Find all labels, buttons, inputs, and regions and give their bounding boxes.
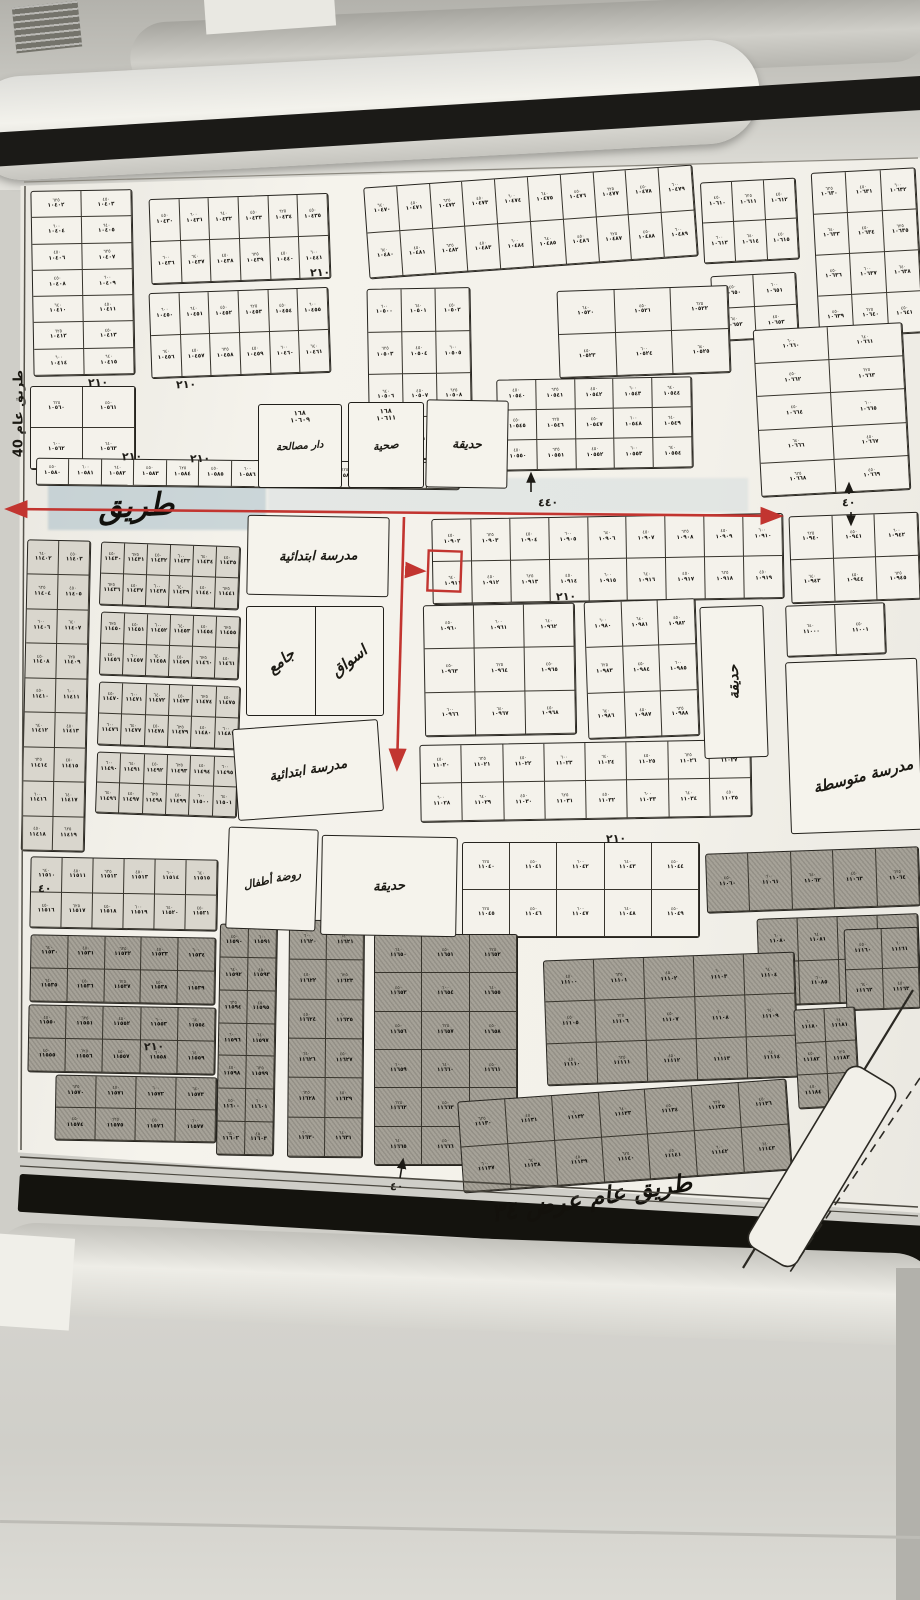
plot-cell: ٦٠٠١٠٩١٠ xyxy=(743,514,783,557)
plot-cell: ٦٤٠١٠٥٤٩ xyxy=(653,407,692,438)
dimension-label: ٤٠ xyxy=(842,496,856,509)
plot-cell: ٤٥٠١١٦٢٤ xyxy=(289,999,326,1039)
plot-cell: ٤٥٠١٠٤٧٣ xyxy=(462,179,498,226)
plot-cell: ٦٢٥١٠٩٠٣ xyxy=(471,519,511,562)
plot-cell: ٤٥٠١٠٦٦٧ xyxy=(833,423,909,460)
plot-cell: ٦٤٠١١٥٠١ xyxy=(213,787,237,818)
plot-cell: ٦٠٠١١٠٤٧ xyxy=(557,890,604,937)
plot-cell: ٦٤٠١٠٥٢٠ xyxy=(558,290,616,335)
plot-cell: ٦٠٠١٠٩٦١ xyxy=(474,605,525,649)
plot-cell: ٦٢٥١١٠٢١ xyxy=(462,744,504,783)
facility-label: دار مصالحة xyxy=(276,439,324,453)
plot-cell: ٤٥٠١٠٩٨٤ xyxy=(623,646,661,693)
plot-cell: ٤٥٠١١٠٣٥ xyxy=(710,778,752,817)
plot-cell: ٦٢٥١١١٨٣ xyxy=(826,1040,858,1074)
plot-cell: ٦٠٠١١٥٣٩ xyxy=(178,971,215,1005)
plot-cell: ٦٠٠١١١٠٨ xyxy=(695,996,746,1039)
plot-cell: ٦٢٥١٠٤٠٧ xyxy=(82,243,132,270)
plot-cell: ٦٢٥١١٥٧٥ xyxy=(95,1108,136,1141)
plot-cell: ٤٥٠١٠٤٣٥ xyxy=(298,194,329,237)
plot-cell: ٦٢٥١١٤٥٥ xyxy=(216,617,240,649)
plot-cell: ٤٥٠١٠٦١٠ xyxy=(701,182,734,224)
plot-cell: ٦٤٠١١٤٣٩ xyxy=(169,576,193,608)
plot-block: ٦٤٠١١٥٣٠٤٥٠١١٥٣١٦٢٥١١٥٣٢٤٥٠١١٥٣٣٦٠٠١١٥٣٤… xyxy=(29,934,216,1005)
plot-cell: ٦٢٥١١٥٥٦ xyxy=(66,1039,104,1073)
plot-cell: ٦٤٠١١٤٩٦ xyxy=(96,783,120,814)
plot-cell: ٤٥٠١١٤٣٢ xyxy=(147,544,171,576)
plot-cell: ٤٥٠١١٥١٨ xyxy=(92,893,124,929)
plot-cell: ٦٤٠١١٤٩١ xyxy=(120,753,144,784)
plot-cell: ٤٥٠١١٥٧٤ xyxy=(55,1108,96,1141)
plot-cell: ٤٥٠١١٤٦١ xyxy=(215,648,239,680)
plot-cell: ٦٤٠١٠٥٥٤ xyxy=(653,437,692,468)
plot-cell: ٦٠٠١٠٦٣٧ xyxy=(850,252,886,295)
plot-cell: ٦٠٠١١٤٣٨ xyxy=(146,575,170,607)
dimension-label: ٢١٠ xyxy=(606,832,627,846)
plot-cell: ٦٤٠١١١٠٩ xyxy=(745,994,796,1037)
plot-cell: ٦٢٥١٠٤٨٢ xyxy=(433,227,469,274)
plot-cell: ٦٢٥١٠٥٤٦ xyxy=(537,409,576,440)
plot-cell: ٦٤٠١١٦٥٥ xyxy=(470,973,517,1011)
plot-cell: ٤٥٠١٠٤٣٨ xyxy=(210,239,241,282)
plot-cell: ٤٥٠١١١٠٢ xyxy=(644,956,695,999)
plot-block: ٦٤٠١٠٥٢٠٤٥٠١٠٥٢١٦٢٥١٠٥٢٢٤٥٠١٠٥٢٣٦٠٠١٠٥٢٤… xyxy=(557,285,732,379)
plot-cell: ٦٠٠١٠٦٥١ xyxy=(753,273,797,307)
plot-cell: ٦٢٥١١٤٩٣ xyxy=(167,755,191,786)
plot-cell: ٦٢٥١٠٦٣٠ xyxy=(812,172,848,215)
plot-cell: ٦٢٥١٠٤٣٤ xyxy=(268,195,299,238)
plot-cell: ٦٢٥١١٥٣٧ xyxy=(104,970,141,1004)
plot-cell: ٦٠٠١١٠٣٣ xyxy=(627,780,669,819)
dimension-label: ٢١٠ xyxy=(144,1040,165,1054)
plot-cell: ٦٠٠١١٥٩٦ xyxy=(219,1023,248,1056)
plot-cell: ٦٤٠١٠٤٣٢ xyxy=(209,197,240,240)
plot-cell: ٦٢٥١١٤١٤ xyxy=(23,747,55,782)
plot-cell: ٦٠٠١١٦٠١ xyxy=(246,1089,275,1122)
plot-cell: ٦٢٥١١٤٩٨ xyxy=(143,784,167,815)
plot-cell: ٤٥٠١٠٩١٢ xyxy=(472,561,512,604)
plot-cell: ٤٥٠١١٥١٦ xyxy=(30,892,62,928)
plot-cell: ٦٠٠١١٤٣٣ xyxy=(170,545,194,577)
plot-block: ٦٢٥١١٠٤٠٤٥٠١١٠٤١٦٠٠١١٠٤٢٦٤٠١١٠٤٣٤٥٠١١٠٤٤… xyxy=(462,842,700,938)
plot-cell: ٤٥٠١١١١٢ xyxy=(647,1039,698,1082)
plot-cell: ٦٠٠١٠٩٨٠ xyxy=(585,602,623,649)
plot-cell: ٤٥٠١١٦٥١ xyxy=(422,935,469,973)
plot-cell: ٤٥٠١١٤٧٠ xyxy=(99,683,123,715)
plot-cell: ٦٢٥١١١٣٥ xyxy=(692,1083,742,1131)
facility-block: صحية١٦٨ ١٠٦١١ xyxy=(348,402,424,488)
plot-block: ٤٥٠١١٠٦٠٦٠٠١١٠٦١٦٤٠١١٠٦٢٤٥٠١١٠٦٣٦٢٥١١٠٦٤ xyxy=(705,846,920,913)
facility-label: اسواق xyxy=(328,642,371,681)
plot-block: ٦٢٥١٠٦٣٠٤٥٠١٠٦٣١٦٠٠١٠٦٣٢٦٤٠١٠٦٣٣٤٥٠١٠٦٣٤… xyxy=(811,167,920,338)
plot-cell: ٦٠٠١٠٥٠٠ xyxy=(368,289,403,332)
plot-cell: ٤٥٠١١٤٨٠ xyxy=(191,717,215,749)
dimension-label: ٢١٠ xyxy=(122,450,143,464)
plot-cell: ٤٥٠١٠٥٤٢ xyxy=(575,379,614,410)
plot-cell: ٦٢٥١٠٩٠٨ xyxy=(666,515,706,558)
plot-cell: ٤٥٠١١٤٣٥ xyxy=(216,547,240,579)
plot-cell: ٦٤٠١٠٤٨٠ xyxy=(367,231,403,278)
facility-label: مدرسة ابتدائية xyxy=(279,548,358,564)
plot-cell: ٦٤٠١١٠٢٩ xyxy=(462,782,504,821)
dimension-label: ٤٠ xyxy=(38,882,52,895)
plot-cell: ٦٢٥١٠٩١٨ xyxy=(705,557,745,600)
plot-cell: ٦٢٥١١٤٣١ xyxy=(124,543,148,575)
plot-cell: ٦٤٠١٠٤٦١ xyxy=(299,330,330,373)
plot-cell: ٦٠٠١١٠٦١ xyxy=(748,852,792,911)
plot-cell: ٦٠٠١١١٦١ xyxy=(881,928,919,969)
plot-cell: ٦٢٥١٠٩٨٨ xyxy=(661,690,699,737)
plot-cell: ٤٥٠١١١٦٣ xyxy=(883,968,920,1009)
plot-cell: ٦٠٠١٠٥٤٨ xyxy=(614,408,653,439)
plot-cell: ٤٥٠١١٦٠٣ xyxy=(245,1122,274,1155)
plot-cell: ٦٠٠١٠٦٣٢ xyxy=(880,168,916,211)
plot-cell: ٤٥٠١١٥٥٧ xyxy=(103,1040,141,1074)
paper-scrap xyxy=(0,1233,75,1330)
plot-cell: ٦٤٠١٠٩٨١ xyxy=(621,600,659,647)
plot-cell: ٦٤٠١٠٤٠٥ xyxy=(82,216,132,243)
plot-cell: ٦٤٠١٠٦٣٨ xyxy=(885,250,920,293)
plot-cell: ٦٠٠١١٤٠٦ xyxy=(26,609,58,644)
plot-cell: ٤٥٠١١٤١٨ xyxy=(22,816,54,851)
plot-cell: ٦٠٠١٠٤٧٩ xyxy=(659,166,695,213)
plot-cell: ٤٥٠١١٤٧٨ xyxy=(145,715,169,747)
plot-cell: ٦٤٠١١٦٦٥ xyxy=(375,1127,422,1165)
plot-cell: ٦٢٥١١٥٩٩ xyxy=(246,1056,275,1089)
plot-cell: ٦٢٥١١٠٤٥ xyxy=(463,890,510,937)
plot-cell: ٤٥٠١٠٤٧١ xyxy=(397,184,433,231)
plot-cell: ٤٥٠١١١٣٤ xyxy=(645,1086,695,1134)
plot-cell: ٦٢٥١١٤٧٤ xyxy=(192,686,216,718)
plot-cell: ٦٠٠١٠٩١٥ xyxy=(589,559,629,602)
plot-cell: ٤٥٠١١٥٧١ xyxy=(96,1076,137,1109)
plot-cell: ٦٢٥١٠٤٣٩ xyxy=(240,238,271,281)
plot-block: ٦٠٠١٠٤٥٠٦٤٠١٠٤٥١٤٥٠١٠٤٥٢٦٢٥١٠٤٥٣٤٥٠١٠٤٥٤… xyxy=(149,287,332,379)
plot-cell: ٦٠٠١٠٦٦٠ xyxy=(754,327,830,364)
plot-cell: ٦٠٠١١٦٣٠ xyxy=(288,1117,325,1157)
plot-cell: ٤٥٠١١١٠٥ xyxy=(545,1001,596,1044)
plot-cell: ٦٤٠١١١٤٣ xyxy=(742,1125,792,1173)
plot-cell: ٦٢٥١١٦٢٨ xyxy=(288,1078,325,1118)
plot-cell: ٤٥٠١١٦٥٨ xyxy=(470,1012,517,1050)
plot-cell: ٤٥٠١٠٥٢٣ xyxy=(559,333,617,378)
plot-block: ٤٥٠١٠٤٣٠٦٠٠١٠٤٣١٦٤٠١٠٤٣٢٤٥٠١٠٤٣٣٦٢٥١٠٤٣٤… xyxy=(149,193,332,285)
plot-cell: ٦٠٠١٠٤٨٤ xyxy=(498,222,534,269)
plot-cell: ٤٥٠١٠٩٤١ xyxy=(832,514,876,558)
facility-block: مدرسة ابتدائية xyxy=(246,515,389,597)
plot-cell: ٦٢٥١٠٦٦٣ xyxy=(829,356,905,393)
plot-block: ٦٤٠١١٥١٠٤٥٠١١٥١١٦٢٥١١٥١٢٤٥٠١١٥١٣٦٠٠١١٥١٤… xyxy=(29,856,218,931)
facility-block-mosque-market: جامعاسواق xyxy=(246,606,384,716)
plot-cell: ٤٥٠١١٠٤٤ xyxy=(652,843,699,890)
plot-cell: ٤٥٠١٠٩٠٤ xyxy=(510,518,550,561)
plot-cell: ٦٠٠١٠٦٦٥ xyxy=(831,390,907,427)
plot-cell: ٤٥٠١٠٤٥٤ xyxy=(268,289,299,332)
plot-cell: ٤٥٠١١٠٣٠ xyxy=(504,782,546,821)
plot-cell: ٤٥٠١١٠٢٥ xyxy=(627,742,669,781)
plot-cell: ٦٤٠١١٠٣٤ xyxy=(668,779,710,818)
plot-cell: ٦٢٥١٠٩٤٠ xyxy=(790,516,834,560)
plot-block: ٦٠٠١٠٩٨٠٦٤٠١٠٩٨١٤٥٠١٠٩٨٢٦٢٥١٠٩٨٣٤٥٠١٠٩٨٤… xyxy=(584,598,701,740)
plot-cell: ٦٤٠١١٥٥٤ xyxy=(178,1008,216,1042)
plot-cell: ٤٥٠١٠٤٥٧ xyxy=(181,334,212,377)
plot-cell: ٦٤٠١٠٦١٤ xyxy=(734,220,767,262)
facility-block: مدرسة متوسطة xyxy=(785,658,920,835)
plot-cell: ٦٤٠١١٠٤٨ xyxy=(605,890,652,937)
plot-cell: ٦٠٠١١٤٥٢ xyxy=(147,614,171,646)
plot-cell: ٤٥٠١١٥١٣ xyxy=(124,859,156,895)
plot-cell: ٦٤٠١١٤٥٣ xyxy=(170,615,194,647)
plot-block: ٦٤٠١١٠٠٠٤٥٠١١٠٠١ xyxy=(785,602,887,657)
plot-cell: ٦٤٠١١٤٠٧ xyxy=(57,610,89,645)
plot-cell: ٤٥٠١١٠٦٠ xyxy=(706,853,750,912)
plot-cell: ٦٠٠١١٥٧٢ xyxy=(136,1077,177,1110)
plot-cell: ٦٠٠١١٥١٩ xyxy=(123,894,155,930)
plot-block: ٤٥٠١٠٥٤٠٦٢٥١٠٥٤١٤٥٠١٠٥٤٢٦٠٠١٠٥٤٣٦٤٠١٠٥٤٤… xyxy=(496,376,694,471)
plot-cell: ٦٢٥١٠٤٠٢ xyxy=(31,191,81,218)
facility-block: حديقة xyxy=(699,605,768,759)
plot-cell: ٦٠٠١٠٤٠٩ xyxy=(83,269,133,296)
plot-cell: ٦٠٠١٠٤١٤ xyxy=(34,349,84,376)
plot-cell: ٦٢٥١١٥٩٤ xyxy=(219,990,248,1023)
plot-block: ٦٢٥١٠٩٤٠٤٥٠١٠٩٤١٦٠٠١٠٩٤٢٦٤٠١٠٩٤٣٤٥٠١٠٩٤٤… xyxy=(789,512,920,604)
plot-block: ٦٢٥١١٥٧٠٤٥٠١١٥٧١٦٠٠١١٥٧٢٦٤٠١١٥٧٣٤٥٠١١٥٧٤… xyxy=(54,1075,217,1144)
plot-cell: ٦٤٠١١٦٣١ xyxy=(325,1118,362,1158)
plot-cell: ٤٥٠١٠٩٠٢ xyxy=(432,519,472,562)
plot-cell: ٦٢٥١٠٥٥١ xyxy=(537,439,576,470)
barcode-sticker xyxy=(12,1,82,54)
plot-cell: ٤٥٠١١٥٩٣ xyxy=(248,958,277,991)
plot-cell: ٤٥٠١١٤٠٥ xyxy=(58,575,90,610)
plot-cell: ٦٤٠١١١٦٢ xyxy=(846,969,884,1010)
facility-label: حديقة xyxy=(725,664,742,699)
plot-cell: ٤٥٠١١٥٥٠ xyxy=(29,1005,67,1039)
plot-cell: ٦٤٠١٠٦٦١ xyxy=(828,323,904,360)
plot-cell: ٦٤٠١١٥٣٠ xyxy=(31,935,68,969)
plot-cell: ٦٠٠١١٤٩٠ xyxy=(97,753,121,784)
plot-cell: ٦٤٠١١١٨١ xyxy=(824,1007,856,1041)
plot-cell: ٤٥٠١١٦٢٧ xyxy=(326,1039,363,1079)
plot-cell: ٦٤٠١١٤٧٧ xyxy=(121,714,145,746)
plot-cell: ٦٠٠١٠٤٥٥ xyxy=(298,288,329,331)
plot-cell: ٦٠٠١١٤١١ xyxy=(56,679,88,714)
plot-cell: ٦٢٥١٠٤٨٧ xyxy=(596,215,632,262)
photo-of-cadastral-map: ٦٢٥١٠٤٠٢٤٥٠١٠٤٠٣٦٠٠١٠٤٠٤٦٤٠١٠٤٠٥٤٥٠١٠٤٠٦… xyxy=(0,0,920,1600)
plot-cell: ٤٥٠١١١٠٠ xyxy=(544,960,595,1003)
plot-cell: ٦٢٥١١٥١٧ xyxy=(61,893,93,929)
plot-cell: ٤٥٠١١٤٩٤ xyxy=(190,756,214,787)
plot-cell: ٦٢٥١١٤٧٩ xyxy=(168,716,192,748)
plot-block: ٤٥٠١٠٩٠٢٦٢٥١٠٩٠٣٤٥٠١٠٩٠٤٦٠٠١٠٩٠٥٦٤٠١٠٩٠٦… xyxy=(431,513,784,605)
plot-cell: ٤٥٠١١١٨٢ xyxy=(796,1042,828,1076)
plot-cell: ٦٤٠١٠٤٧٥ xyxy=(528,175,564,222)
plot-cell: ٤٥٠١٠٤٤٠ xyxy=(270,237,301,280)
plot-cell: ٤٥٠١١١١٠ xyxy=(547,1042,598,1085)
plot-cell: ٦٤٠١٠٥٢٥ xyxy=(672,329,730,374)
plot-cell: ٦٢٥١١٤٠٩ xyxy=(56,644,88,679)
plot-cell: ٦٢٥١١٥١٢ xyxy=(93,858,125,894)
plot-cell: ٤٥٠١٠٥٥٢ xyxy=(576,439,615,470)
plot-cell: ٦٤٠١٠٩١٦ xyxy=(627,558,667,601)
plot-cell: ٦٤٠١١٤٥٨ xyxy=(146,645,170,677)
plot-cell: ٦٤٠١١٦٥٠ xyxy=(375,935,422,973)
plot-cell: ٤٥٠١١٤٧٣ xyxy=(169,685,193,717)
plot-cell: ٤٥٠١٠٩٦٨ xyxy=(525,690,576,734)
plot-cell: ٤٥٠١٠٩٦٣ xyxy=(425,649,476,693)
plot-cell: ٦٢٥١٠٤٥٨ xyxy=(210,333,241,376)
plot-cell: ٤٥٠١٠٦٣٤ xyxy=(848,211,884,254)
plot-block: ٦٠٠١١٦٢٠٦٤٠١١٦٢١٤٥٠١١٦٢٢٦٢٥١١٦٢٣٤٥٠١١٦٢٤… xyxy=(287,920,365,1159)
facility-plot-number: ١٦٨ ١٠٦١١ xyxy=(376,407,397,423)
plot-cell: ٤٥٠١٠٤٥٩ xyxy=(240,332,271,375)
plot-cell: ٤٥٠١٠٩١٧ xyxy=(666,557,706,600)
plot-cell: ٦٤٠١١٠٤٣ xyxy=(605,843,652,890)
plot-cell: ٤٥٠١١٥٢١ xyxy=(185,895,217,931)
plot-cell: ٦٤٠١٠٤١٠ xyxy=(33,296,83,323)
plot-cell: ٤٥٠١١٦٥٦ xyxy=(375,1012,422,1050)
facility-block: مدرسة ابتدائية xyxy=(232,719,384,821)
plot-cell: ٦٢٥١٠٤١٢ xyxy=(34,322,84,349)
plot-cell: ٦٢٥١٠٩٦٤ xyxy=(475,648,526,692)
plot-cell: ٦٢٥١١٤١٩ xyxy=(53,817,85,852)
plot-cell: ٦٢٥١١٠٤٠ xyxy=(463,843,510,890)
plot-cell: ٤٥٠١٠٤٨١ xyxy=(400,229,436,276)
plot-cell: ٦٠٠١١٥١٤ xyxy=(155,860,187,896)
plot-cell: ٤٥٠١١٥٥٥ xyxy=(28,1038,66,1072)
plot-cell: ٦٤٠١٠٤٧٠ xyxy=(364,186,400,233)
facility-label: روضة أطفال xyxy=(242,867,302,892)
plot-cell: ٤٥٠١٠٤١١ xyxy=(83,295,133,322)
plot-cell: ٦٤٠١٠٩٨٦ xyxy=(588,692,626,739)
plot-cell: ٤٥٠١٠٩٦٥ xyxy=(525,647,576,691)
plot-cell: ٤٥٠١٠٥٠٤ xyxy=(402,331,437,374)
plot-cell: ٤٥٠١٠٦١٥ xyxy=(766,219,799,261)
plot-cell: ٤٥٠١١٤٥٩ xyxy=(169,646,193,678)
plot-cell: ٦٢٥١١١٣٠ xyxy=(458,1099,508,1147)
plot-cell: ٦٤٠١١٤٧٢ xyxy=(146,684,170,716)
plot-cell: ٦٠٠١٠٤٧٤ xyxy=(495,177,531,224)
plot-cell: ٦٠٠١١١٨٠ xyxy=(794,1009,826,1043)
plot-cell: ٤٥٠١١٥١١ xyxy=(62,858,94,894)
plot-cell: ٤٥٠١١٤٣٧ xyxy=(123,574,147,606)
plot-cell: ٤٥٠١١٤١٥ xyxy=(54,748,86,783)
plot-cell: ٤٥٠١٠٤٣٣ xyxy=(239,196,270,239)
plot-cell: ٦٤٠١٠٩٦٧ xyxy=(475,691,526,735)
plot-cell: ٤٥٠١٠٩٦٠ xyxy=(424,605,475,649)
plot-cell: ٤٥٠١٠٦٦٢ xyxy=(755,360,831,397)
plot-cell: ٦٠٠١١١٨٥ xyxy=(828,1073,860,1107)
plot-block: ٤٥٠١٠٩٦٠٦٠٠١٠٩٦١٦٤٠١٠٩٦٢٤٥٠١٠٩٦٣٦٢٥١٠٩٦٤… xyxy=(423,603,577,738)
plot-cell: ٤٥٠١١٤٩٧ xyxy=(119,783,143,814)
plot-cell: ٦٠٠١٠٤٨٩ xyxy=(662,211,698,258)
plot-cell: ٦٤٠١٠٩٦٢ xyxy=(524,604,575,648)
plot-cell: ٦٢٥١١٤٠٤ xyxy=(27,575,59,610)
plot-cell: ٦٠٠١١٦٥٩ xyxy=(375,1050,422,1088)
plot-cell: ٦٤٠١٠٥٨٢ xyxy=(102,459,135,485)
plot-cell: ٤٥٠١١٦٠٠ xyxy=(218,1089,247,1122)
facility-block: حديقة xyxy=(320,835,458,937)
road-label: طريق xyxy=(97,486,175,526)
plot-cell: ٤٥٠١١٤١٣ xyxy=(55,713,87,748)
plot-cell: ٦٠٠١٠٩٤٢ xyxy=(875,513,919,557)
plot-cell: ٤٥٠١٠٦٦٩ xyxy=(835,456,911,493)
plot-cell: ٤٥٠١٠٦٣١ xyxy=(846,170,882,213)
plot-cell: ٤٥٠١١٤٩٩ xyxy=(166,785,190,816)
plot-cell: ٦٤٠١١٥٥٩ xyxy=(177,1041,215,1075)
plot-cell: ٦٤٠١١٤١٢ xyxy=(24,713,56,748)
plot-cell: ٤٥٠١١٤٣٠ xyxy=(101,543,125,575)
plot-cell: ٦٠٠١١٠٢٨ xyxy=(421,783,463,822)
plot-cell: ٤٥٠١٠٩١٩ xyxy=(744,556,784,599)
plot-cell: ٤٥٠١١٥٣٦ xyxy=(67,969,104,1003)
plot-block: ٤٥٠١١١٠٠٦٢٥١١١٠١٤٥٠١١١٠٢٦٠٠١١١٠٣٦٤٠١١١٠٤… xyxy=(543,952,799,1087)
plot-cell: ٦٢٥١١٤٦٠ xyxy=(192,647,216,679)
plot-cell: ٤٥٠١٠٩٨٧ xyxy=(624,691,662,738)
plot-cell: ٦٠٠١٠٤٣١ xyxy=(179,198,210,241)
plot-cell: ٤٥٠١٠٩٤٤ xyxy=(834,557,878,601)
plot-cell: ٦٠٠١١٤٥٧ xyxy=(123,644,147,676)
plot-cell: ٦٤٠١٠٤١٥ xyxy=(84,348,134,375)
plot-cell: ٦٤٠١١٦٦٠ xyxy=(422,1050,469,1088)
plot-cell: ٦٢٥١١٥٣٢ xyxy=(105,937,142,971)
plot-cell: ٦٤٠١١٤٠٢ xyxy=(28,540,60,575)
plot-cell: ٦٢٥١٠٥٦٠ xyxy=(31,387,83,428)
plot-cell: ٦٠٠١١٠٨٥ xyxy=(799,960,840,1004)
plot-cell: ٦٢٥١٠٤٧٢ xyxy=(430,182,466,229)
plot-cell: ٤٥٠١١٥٧٦ xyxy=(135,1109,176,1142)
plot-cell: ٦٠٠١١١١٣ xyxy=(697,1037,748,1080)
plot-cell: ٤٥٠١٠٥٨٠ xyxy=(37,459,70,485)
facility-plot-number: ١٦٨ ١٠٦٠٩ xyxy=(290,409,311,425)
plot-cell: ٦٤٠١٠٦٦٦ xyxy=(759,427,835,464)
plot-cell: ٤٥٠١١١٠٧ xyxy=(645,997,696,1040)
plot-cell: ٦٢٥١١٤٤١ xyxy=(215,578,239,610)
facility-label: حديقة xyxy=(373,878,406,895)
plot-cell: ٦٠٠١١٥٠٠ xyxy=(189,786,213,817)
plot-cell: ٦٠٠١٠٥٨١ xyxy=(69,459,102,485)
plot-cell: ٦٠٠١٠٥٥٣ xyxy=(615,438,654,469)
plot-cell: ٦٢٥١٠٦١١ xyxy=(732,180,765,222)
plot-cell: ٦٤٠١١١٣٣ xyxy=(598,1089,648,1137)
plot-cell: ٦٢٥١٠٥٢٢ xyxy=(671,286,729,331)
facility-label: حديقة xyxy=(452,437,482,452)
plot-cell: ٦٠٠١٠٤٠٤ xyxy=(32,217,82,244)
plot-cell: ٦٢٥١٠٥٤١ xyxy=(536,379,575,410)
plot-cell: ٦٤٠١٠٩٠٦ xyxy=(588,517,628,560)
plot-cell: ٦٤٠١١٥١٥ xyxy=(186,860,218,896)
plot-cell: ٦٢٥١١١٠٦ xyxy=(595,999,646,1042)
plot-cell: ٤٥٠١١٠٠١ xyxy=(835,603,886,655)
plot-cell: ٤٥٠١١٤٥١ xyxy=(124,613,148,645)
plot-cell: ٤٥٠١١٤٥٤ xyxy=(193,616,217,648)
plot-cell: ٤٥٠١٠٤٧٨ xyxy=(626,168,662,215)
plot-cell: ٦٤٠١١٥٣٥ xyxy=(30,968,67,1002)
plot-cell: ٤٥٠١١٠٢٢ xyxy=(503,744,545,783)
plot-block: ٤٥٠١١٠٢٠٦٢٥١١٠٢١٤٥٠١١٠٢٢٦٠٠١١٠٢٣٦٤٠١١٠٢٤… xyxy=(419,739,752,823)
plot-cell: ٦٠٠١٠٦١٣ xyxy=(703,222,736,264)
plot-cell: ٤٥٠١٠٤١٣ xyxy=(84,322,134,349)
plot-cell: ٤٥٠١٠٦٦٤ xyxy=(757,393,833,430)
plot-cell: ٤٥٠١٠٤٠٦ xyxy=(32,244,82,271)
plot-cell: ٦٢٥١١٥٥١ xyxy=(66,1006,104,1040)
plot-block: ٦٤٠١١٤٠٢٤٥٠١١٤٠٣٦٢٥١١٤٠٤٤٥٠١١٤٠٥٦٠٠١١٤٠٦… xyxy=(21,539,92,852)
plot-cell: ٤٥٠١١١٣٩ xyxy=(555,1138,605,1186)
plot-cell: ٦٠٠١٠٥٢٤ xyxy=(616,331,674,376)
plot-cell: ٦٢٥١٠٩٤٥ xyxy=(876,556,920,600)
plot-cell: ٦٤٠١٠٥٠١ xyxy=(402,289,437,332)
plot-cell: ٤٥٠١١٠٦٣ xyxy=(833,849,877,908)
plot-cell: ٤٥٠١١٠٤٩ xyxy=(652,890,699,937)
